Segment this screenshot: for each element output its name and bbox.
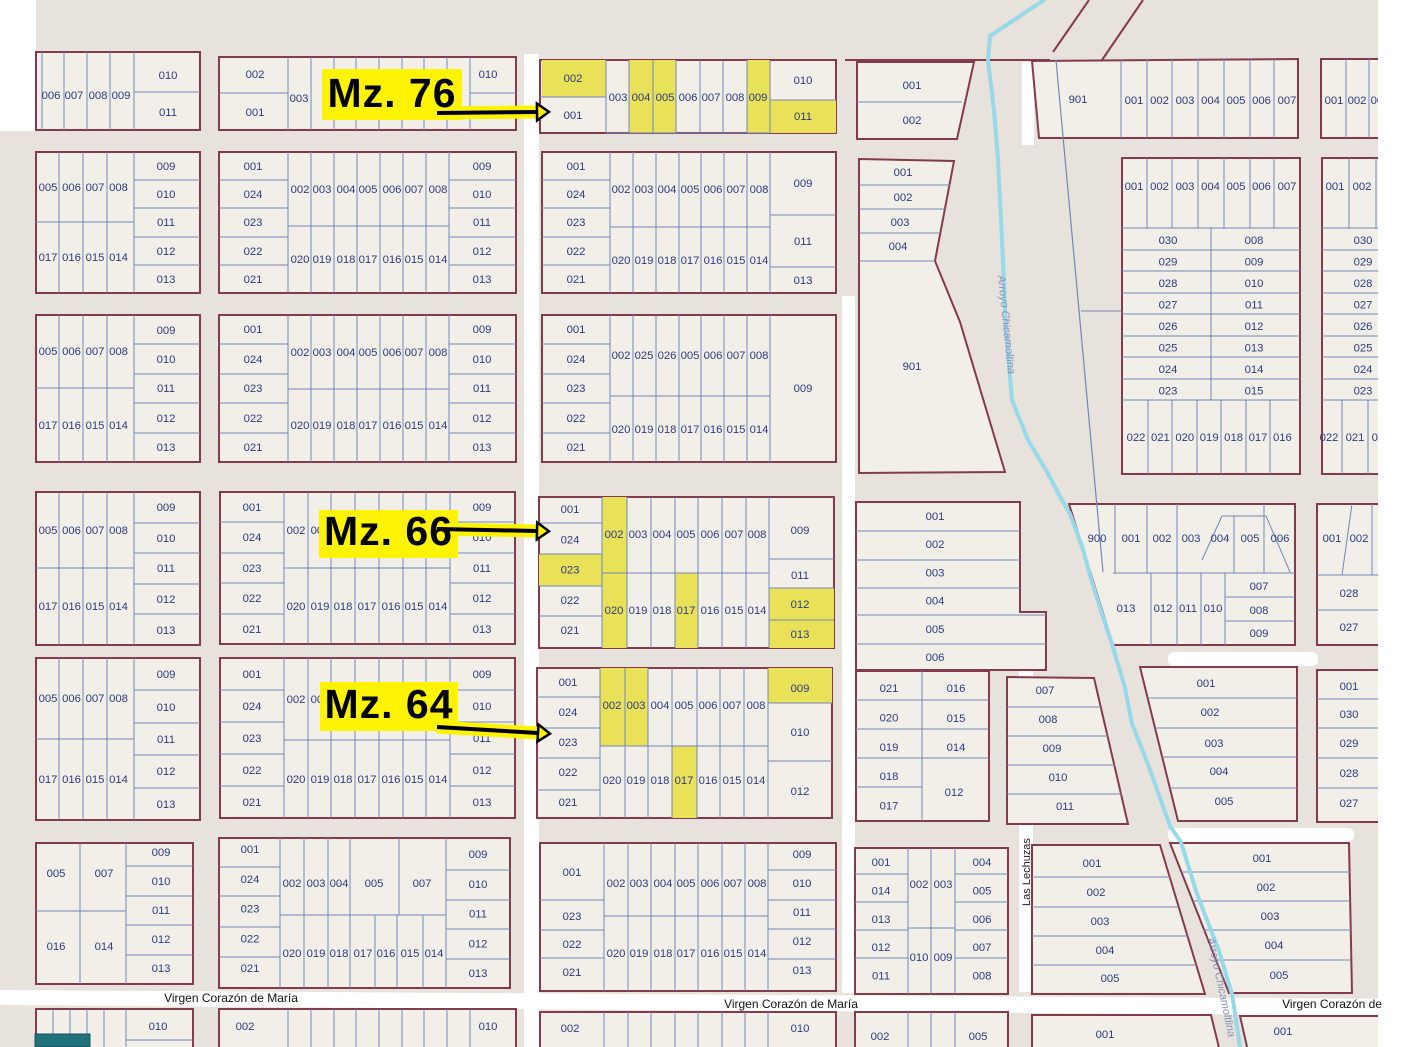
svg-text:010: 010 (479, 1021, 498, 1033)
svg-text:001: 001 (567, 161, 586, 173)
svg-text:005: 005 (1101, 973, 1120, 985)
svg-text:013: 013 (1117, 603, 1136, 615)
svg-text:010: 010 (157, 354, 176, 366)
svg-text:001: 001 (244, 161, 263, 173)
svg-text:009: 009 (473, 669, 492, 681)
svg-text:013: 013 (157, 799, 176, 811)
svg-text:012: 012 (473, 593, 492, 605)
svg-text:004: 004 (632, 92, 651, 104)
svg-text:001: 001 (1326, 181, 1345, 193)
svg-text:012: 012 (791, 786, 810, 798)
svg-text:018: 018 (654, 948, 673, 960)
svg-text:015: 015 (401, 948, 420, 960)
svg-text:003: 003 (926, 567, 945, 579)
svg-text:017: 017 (675, 775, 694, 787)
svg-text:003: 003 (1091, 916, 1110, 928)
svg-text:007: 007 (1036, 685, 1055, 697)
svg-text:019: 019 (311, 774, 330, 786)
svg-text:013: 013 (872, 914, 891, 926)
svg-text:010: 010 (159, 70, 178, 82)
svg-text:011: 011 (159, 107, 177, 119)
svg-text:002: 002 (1153, 533, 1172, 545)
svg-text:008: 008 (109, 693, 128, 705)
svg-text:001: 001 (1125, 95, 1144, 107)
svg-text:010: 010 (793, 878, 812, 890)
svg-text:014: 014 (425, 948, 444, 960)
svg-text:023: 023 (561, 565, 580, 577)
svg-text:012: 012 (469, 938, 488, 950)
svg-text:007: 007 (725, 529, 744, 541)
svg-text:029: 029 (1340, 738, 1359, 750)
svg-text:001: 001 (1125, 181, 1144, 193)
svg-text:017: 017 (39, 774, 58, 786)
svg-text:002: 002 (287, 525, 306, 537)
svg-text:008: 008 (748, 878, 767, 890)
svg-text:001: 001 (1325, 95, 1344, 107)
svg-text:002: 002 (612, 184, 631, 196)
svg-text:008: 008 (1039, 714, 1058, 726)
svg-text:001: 001 (926, 511, 945, 523)
svg-text:027: 027 (1340, 798, 1359, 810)
svg-text:022: 022 (559, 767, 578, 779)
svg-text:002: 002 (1348, 95, 1367, 107)
svg-text:006: 006 (62, 693, 81, 705)
svg-text:002: 002 (871, 1031, 890, 1043)
svg-text:009: 009 (794, 178, 813, 190)
svg-text:004: 004 (337, 184, 356, 196)
svg-text:004: 004 (337, 347, 356, 359)
svg-text:018: 018 (1224, 432, 1243, 444)
svg-text:002: 002 (291, 347, 310, 359)
svg-text:013: 013 (791, 629, 810, 641)
svg-text:022: 022 (563, 939, 582, 951)
svg-text:005: 005 (969, 1031, 988, 1043)
svg-text:003: 003 (891, 217, 910, 229)
svg-text:002: 002 (612, 350, 631, 362)
svg-text:009: 009 (791, 683, 810, 695)
svg-text:009: 009 (112, 90, 131, 102)
svg-text:015: 015 (405, 601, 424, 613)
svg-text:008: 008 (109, 346, 128, 358)
svg-text:010: 010 (157, 189, 176, 201)
svg-text:016: 016 (47, 941, 66, 953)
svg-text:Mz. 66: Mz. 66 (324, 508, 453, 554)
svg-text:006: 006 (62, 525, 81, 537)
svg-text:015: 015 (86, 601, 105, 613)
svg-text:007: 007 (86, 693, 105, 705)
svg-text:011: 011 (473, 217, 491, 229)
svg-text:016: 016 (704, 255, 723, 267)
svg-text:017: 017 (677, 948, 696, 960)
svg-text:005: 005 (1270, 970, 1289, 982)
svg-text:023: 023 (567, 383, 586, 395)
svg-text:012: 012 (1154, 603, 1173, 615)
svg-text:018: 018 (880, 771, 899, 783)
svg-text:012: 012 (157, 413, 176, 425)
svg-text:013: 013 (794, 275, 813, 287)
svg-text:007: 007 (727, 350, 746, 362)
svg-text:011: 011 (791, 570, 809, 582)
svg-text:020: 020 (291, 254, 310, 266)
svg-text:012: 012 (793, 936, 812, 948)
svg-text:021: 021 (880, 683, 899, 695)
svg-text:016: 016 (699, 775, 718, 787)
svg-text:025: 025 (635, 350, 654, 362)
svg-text:005: 005 (677, 529, 696, 541)
svg-text:013: 013 (1245, 343, 1264, 355)
svg-text:012: 012 (473, 413, 492, 425)
svg-text:007: 007 (1250, 581, 1269, 593)
svg-text:002: 002 (1257, 882, 1276, 894)
svg-text:010: 010 (157, 533, 176, 545)
svg-text:001: 001 (1122, 533, 1141, 545)
svg-text:015: 015 (725, 605, 744, 617)
svg-text:003: 003 (609, 92, 628, 104)
svg-text:011: 011 (872, 971, 890, 983)
svg-text:014: 014 (429, 774, 448, 786)
svg-text:012: 012 (152, 934, 171, 946)
svg-text:002: 002 (605, 529, 624, 541)
svg-text:022: 022 (243, 593, 262, 605)
svg-text:009: 009 (934, 952, 953, 964)
svg-text:001: 001 (559, 677, 578, 689)
svg-text:004: 004 (889, 241, 908, 253)
svg-text:015: 015 (727, 255, 746, 267)
svg-text:020: 020 (283, 948, 302, 960)
svg-text:004: 004 (1096, 945, 1115, 957)
svg-text:018: 018 (658, 424, 677, 436)
svg-text:001: 001 (561, 504, 580, 516)
svg-text:021: 021 (241, 963, 260, 975)
svg-text:023: 023 (567, 217, 586, 229)
svg-text:004: 004 (653, 529, 672, 541)
svg-text:017: 017 (681, 255, 700, 267)
svg-text:018: 018 (651, 775, 670, 787)
svg-text:017: 017 (39, 252, 58, 264)
svg-text:006: 006 (704, 350, 723, 362)
svg-text:011: 011 (157, 217, 175, 229)
svg-text:003: 003 (313, 347, 332, 359)
svg-text:004: 004 (1265, 940, 1284, 952)
svg-text:018: 018 (330, 948, 349, 960)
svg-text:001: 001 (1083, 858, 1102, 870)
svg-text:Mz. 64: Mz. 64 (324, 681, 453, 727)
svg-text:021: 021 (567, 442, 586, 454)
svg-text:900: 900 (1088, 533, 1107, 545)
svg-text:007: 007 (405, 347, 424, 359)
svg-text:014: 014 (747, 775, 766, 787)
svg-text:002: 002 (903, 115, 922, 127)
svg-text:024: 024 (561, 534, 580, 546)
svg-text:010: 010 (473, 354, 492, 366)
svg-text:019: 019 (630, 948, 649, 960)
svg-text:023: 023 (1354, 386, 1373, 398)
svg-text:001: 001 (1197, 678, 1216, 690)
svg-text:022: 022 (1127, 432, 1146, 444)
svg-text:016: 016 (382, 601, 401, 613)
svg-text:015: 015 (724, 948, 743, 960)
svg-text:017: 017 (358, 774, 377, 786)
svg-text:030: 030 (1354, 235, 1373, 247)
svg-text:001: 001 (872, 857, 891, 869)
svg-text:Mz. 76: Mz. 76 (327, 70, 456, 116)
svg-text:006: 006 (62, 346, 81, 358)
svg-text:016: 016 (383, 420, 402, 432)
svg-text:010: 010 (1245, 278, 1264, 290)
svg-text:009: 009 (157, 325, 176, 337)
svg-text:004: 004 (1201, 95, 1220, 107)
svg-text:013: 013 (157, 442, 176, 454)
svg-text:022: 022 (244, 246, 263, 258)
svg-text:021: 021 (1151, 432, 1170, 444)
svg-text:008: 008 (747, 700, 766, 712)
svg-text:003: 003 (934, 879, 953, 891)
svg-text:009: 009 (469, 849, 488, 861)
svg-text:030: 030 (1340, 709, 1359, 721)
svg-text:010: 010 (1204, 603, 1223, 615)
svg-text:019: 019 (629, 605, 648, 617)
svg-text:016: 016 (1273, 432, 1292, 444)
svg-text:020: 020 (287, 601, 306, 613)
svg-text:011: 011 (469, 909, 487, 921)
svg-text:005: 005 (656, 92, 675, 104)
svg-text:021: 021 (243, 797, 262, 809)
svg-text:017: 017 (358, 601, 377, 613)
svg-text:016: 016 (62, 252, 81, 264)
svg-text:015: 015 (86, 252, 105, 264)
svg-text:007: 007 (86, 346, 105, 358)
svg-text:010: 010 (791, 727, 810, 739)
svg-text:021: 021 (243, 624, 262, 636)
svg-text:011: 011 (157, 563, 175, 575)
svg-text:020: 020 (880, 712, 899, 724)
svg-text:023: 023 (1159, 386, 1178, 398)
svg-text:003: 003 (1176, 95, 1195, 107)
svg-text:014: 014 (429, 254, 448, 266)
svg-text:017: 017 (359, 254, 378, 266)
svg-text:018: 018 (337, 254, 356, 266)
svg-text:016: 016 (947, 683, 966, 695)
svg-text:010: 010 (473, 189, 492, 201)
svg-text:019: 019 (627, 775, 646, 787)
svg-text:012: 012 (157, 766, 176, 778)
svg-text:006: 006 (1252, 95, 1271, 107)
svg-text:028: 028 (1340, 768, 1359, 780)
svg-text:003: 003 (313, 184, 332, 196)
svg-text:013: 013 (793, 965, 812, 977)
svg-text:016: 016 (62, 420, 81, 432)
svg-text:021: 021 (559, 797, 578, 809)
svg-text:007: 007 (727, 184, 746, 196)
svg-text:006: 006 (973, 914, 992, 926)
svg-text:005: 005 (1227, 95, 1246, 107)
svg-text:003: 003 (635, 184, 654, 196)
svg-text:007: 007 (702, 92, 721, 104)
svg-text:005: 005 (1227, 181, 1246, 193)
svg-text:001: 001 (246, 107, 265, 119)
svg-text:005: 005 (681, 184, 700, 196)
svg-text:013: 013 (469, 968, 488, 980)
svg-text:005: 005 (973, 885, 992, 897)
svg-text:001: 001 (1340, 681, 1359, 693)
svg-text:016: 016 (382, 774, 401, 786)
svg-text:016: 016 (701, 948, 720, 960)
svg-text:019: 019 (313, 420, 332, 432)
svg-text:030: 030 (1159, 235, 1178, 247)
svg-text:013: 013 (157, 274, 176, 286)
svg-text:024: 024 (559, 707, 578, 719)
svg-text:015: 015 (723, 775, 742, 787)
svg-text:010: 010 (794, 75, 813, 87)
svg-text:002: 002 (1353, 181, 1372, 193)
svg-text:021: 021 (244, 442, 263, 454)
svg-text:005: 005 (365, 878, 384, 890)
svg-text:019: 019 (307, 948, 326, 960)
svg-text:017: 017 (354, 948, 373, 960)
svg-text:015: 015 (86, 420, 105, 432)
svg-text:015: 015 (405, 774, 424, 786)
svg-text:002: 002 (287, 694, 306, 706)
svg-text:011: 011 (793, 907, 811, 919)
svg-text:024: 024 (243, 701, 262, 713)
svg-text:019: 019 (635, 255, 654, 267)
svg-text:004: 004 (926, 596, 945, 608)
svg-text:007: 007 (405, 184, 424, 196)
svg-text:002: 002 (1150, 95, 1169, 107)
svg-text:014: 014 (95, 941, 114, 953)
svg-text:021: 021 (1346, 432, 1365, 444)
svg-text:008: 008 (109, 182, 128, 194)
svg-text:010: 010 (157, 702, 176, 714)
svg-text:016: 016 (704, 424, 723, 436)
svg-text:010: 010 (469, 879, 488, 891)
svg-text:015: 015 (86, 774, 105, 786)
svg-text:005: 005 (359, 184, 378, 196)
svg-text:007: 007 (65, 90, 84, 102)
svg-text:011: 011 (1245, 300, 1263, 312)
svg-text:005: 005 (926, 624, 945, 636)
svg-text:020: 020 (1175, 432, 1194, 444)
svg-text:007: 007 (413, 878, 432, 890)
svg-text:020: 020 (612, 424, 631, 436)
svg-text:004: 004 (1211, 533, 1230, 545)
svg-text:012: 012 (473, 765, 492, 777)
svg-text:002: 002 (236, 1021, 255, 1033)
svg-text:014: 014 (109, 420, 128, 432)
svg-text:013: 013 (473, 797, 492, 809)
svg-text:002: 002 (246, 69, 265, 81)
svg-text:003: 003 (1261, 911, 1280, 923)
svg-text:017: 017 (681, 424, 700, 436)
svg-text:019: 019 (635, 424, 654, 436)
svg-text:014: 014 (750, 255, 769, 267)
svg-text:Virgen Corazón de: Virgen Corazón de (1282, 997, 1382, 1011)
svg-text:029: 029 (1159, 257, 1178, 269)
svg-text:002: 002 (910, 879, 929, 891)
svg-text:003: 003 (1176, 181, 1195, 193)
svg-text:001: 001 (564, 110, 583, 122)
svg-text:004: 004 (1201, 181, 1220, 193)
svg-text:026: 026 (1159, 321, 1178, 333)
svg-text:006: 006 (62, 182, 81, 194)
svg-text:028: 028 (1340, 588, 1359, 600)
svg-text:006: 006 (1271, 533, 1290, 545)
svg-text:003: 003 (290, 93, 309, 105)
svg-text:017: 017 (1249, 432, 1268, 444)
svg-text:012: 012 (945, 787, 964, 799)
svg-text:020: 020 (607, 948, 626, 960)
svg-text:027: 027 (1159, 300, 1178, 312)
svg-text:006: 006 (42, 90, 61, 102)
svg-text:Las Lechuzas: Las Lechuzas (1021, 838, 1033, 906)
svg-text:009: 009 (1250, 628, 1269, 640)
svg-text:016: 016 (62, 601, 81, 613)
svg-text:009: 009 (791, 525, 810, 537)
svg-text:018: 018 (658, 255, 677, 267)
svg-text:008: 008 (748, 529, 767, 541)
svg-text:022: 022 (243, 765, 262, 777)
svg-text:013: 013 (157, 625, 176, 637)
svg-text:003: 003 (627, 700, 646, 712)
svg-text:016: 016 (701, 605, 720, 617)
svg-text:011: 011 (794, 111, 812, 123)
svg-text:006: 006 (679, 92, 698, 104)
svg-text:005: 005 (677, 878, 696, 890)
svg-text:009: 009 (157, 161, 176, 173)
svg-text:008: 008 (973, 971, 992, 983)
svg-text:022: 022 (567, 413, 586, 425)
svg-text:005: 005 (39, 693, 58, 705)
svg-text:022: 022 (567, 246, 586, 258)
svg-text:017: 017 (359, 420, 378, 432)
svg-text:003: 003 (629, 529, 648, 541)
svg-text:012: 012 (791, 599, 810, 611)
svg-text:015: 015 (405, 420, 424, 432)
svg-text:023: 023 (559, 737, 578, 749)
svg-text:001: 001 (563, 867, 582, 879)
svg-text:021: 021 (563, 967, 582, 979)
svg-text:002: 002 (564, 73, 583, 85)
svg-text:901: 901 (903, 361, 922, 373)
svg-text:009: 009 (749, 92, 768, 104)
svg-text:022: 022 (1320, 432, 1339, 444)
svg-text:007: 007 (95, 868, 114, 880)
svg-text:006: 006 (701, 878, 720, 890)
svg-text:013: 013 (473, 274, 492, 286)
svg-text:018: 018 (337, 420, 356, 432)
svg-text:002: 002 (1201, 707, 1220, 719)
svg-text:009: 009 (1043, 743, 1062, 755)
svg-text:014: 014 (429, 601, 448, 613)
svg-text:009: 009 (152, 847, 171, 859)
svg-text:027: 027 (1340, 622, 1359, 634)
svg-text:020: 020 (287, 774, 306, 786)
svg-text:004: 004 (654, 878, 673, 890)
svg-text:020: 020 (603, 775, 622, 787)
svg-text:002: 002 (607, 878, 626, 890)
svg-text:008: 008 (750, 184, 769, 196)
svg-text:009: 009 (794, 383, 813, 395)
svg-text:025: 025 (1159, 343, 1178, 355)
svg-text:024: 024 (567, 354, 586, 366)
svg-text:001: 001 (1253, 853, 1272, 865)
svg-text:017: 017 (39, 420, 58, 432)
svg-text:Virgen Corazón de María: Virgen Corazón de María (724, 997, 858, 1011)
svg-text:006: 006 (383, 184, 402, 196)
svg-text:007: 007 (1278, 95, 1297, 107)
svg-text:024: 024 (241, 874, 260, 886)
svg-text:014: 014 (429, 420, 448, 432)
